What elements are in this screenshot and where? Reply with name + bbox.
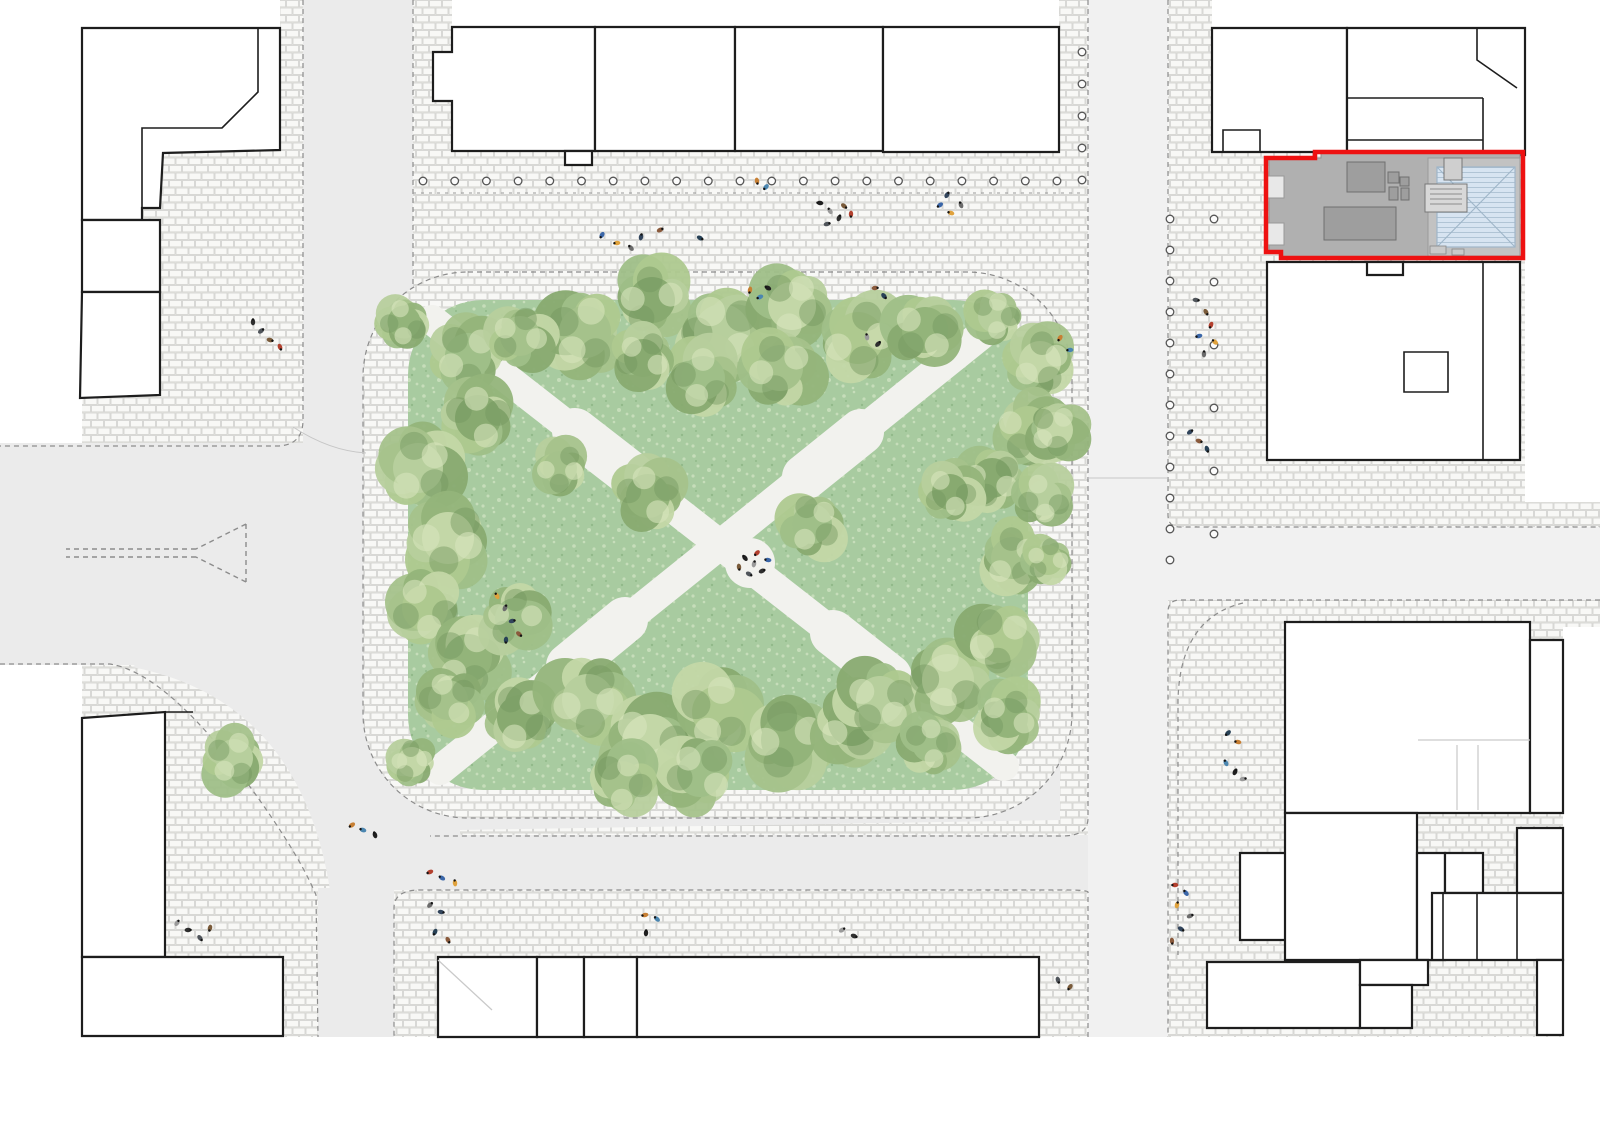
bollard <box>1166 525 1174 533</box>
building-footprint <box>637 957 1039 1037</box>
bollard <box>609 177 617 185</box>
bollard <box>1166 308 1174 316</box>
building-footprint <box>1347 28 1525 155</box>
bollard <box>831 177 839 185</box>
building-footprint <box>1445 853 1483 893</box>
building-footprint <box>1360 960 1428 985</box>
tree <box>666 333 738 417</box>
project-site-building <box>1266 152 1523 258</box>
street-south <box>430 835 1088 890</box>
bollard <box>1166 339 1174 347</box>
building-footprint <box>438 957 537 1037</box>
building-footprint <box>433 27 595 151</box>
building-footprint <box>1432 893 1563 960</box>
building-footprint <box>735 27 883 151</box>
bollard <box>1166 401 1174 409</box>
building-entry-tab <box>565 151 592 165</box>
site-plan-page <box>0 0 1600 1131</box>
bollard <box>736 177 744 185</box>
bollard <box>1210 404 1218 412</box>
building-footprint <box>80 292 160 398</box>
bollard <box>958 177 966 185</box>
building-footprint <box>1537 960 1563 1035</box>
bollard <box>1078 176 1086 184</box>
street-east-horizontal <box>1088 527 1600 600</box>
building-footprint <box>1285 813 1417 960</box>
building-footprint <box>537 957 584 1037</box>
bollard <box>1166 277 1174 285</box>
bollard <box>1078 144 1086 152</box>
bollard <box>578 177 586 185</box>
building-footprint <box>1207 962 1360 1028</box>
bollard <box>1166 215 1174 223</box>
bollard <box>419 177 427 185</box>
bollard <box>451 177 459 185</box>
building-footprint <box>1212 28 1347 152</box>
bollard <box>895 177 903 185</box>
bollard <box>1210 530 1218 538</box>
bollard <box>768 177 776 185</box>
building-footprint <box>883 27 1059 152</box>
building-footprint <box>595 27 735 151</box>
site-entry-step <box>1267 223 1284 245</box>
building-footprint <box>584 957 637 1037</box>
building-footprint <box>1530 640 1563 813</box>
bollard <box>1210 215 1218 223</box>
building-footprint <box>82 712 165 957</box>
bollard <box>641 177 649 185</box>
bollard <box>926 177 934 185</box>
bollard <box>1166 370 1174 378</box>
bollard <box>1166 463 1174 471</box>
street-east-vertical <box>1088 0 1168 1037</box>
building-footprint <box>1360 985 1412 1028</box>
site-rooftop-terrace <box>1324 207 1396 240</box>
building-footprint <box>1267 262 1520 460</box>
building-entry-tab <box>1367 262 1403 275</box>
site-rooftop-skylight <box>1347 162 1385 192</box>
site-plan-canvas <box>0 0 1600 1131</box>
bollard <box>863 177 871 185</box>
bollard <box>514 177 522 185</box>
bollard <box>1078 48 1086 56</box>
bollard <box>705 177 713 185</box>
bollard <box>546 177 554 185</box>
building-footprint <box>1517 828 1563 893</box>
bollard <box>1166 556 1174 564</box>
bollard <box>990 177 998 185</box>
path-crossing-plaza <box>725 538 775 588</box>
bollard <box>1166 246 1174 254</box>
site-entry-step <box>1267 176 1284 198</box>
bollard <box>483 177 491 185</box>
bollard <box>1166 432 1174 440</box>
bollard <box>1053 177 1061 185</box>
tree <box>973 676 1041 754</box>
bollard <box>1078 80 1086 88</box>
building-footprint <box>82 220 160 292</box>
bollard <box>1078 112 1086 120</box>
street-south-vertical <box>318 888 394 1037</box>
bollard <box>800 177 808 185</box>
bollard <box>1210 278 1218 286</box>
bollard <box>1210 467 1218 475</box>
building-footprint <box>1285 622 1530 813</box>
bollard <box>1166 494 1174 502</box>
building-footprint <box>82 957 283 1036</box>
bollard <box>673 177 681 185</box>
bollard <box>1022 177 1030 185</box>
